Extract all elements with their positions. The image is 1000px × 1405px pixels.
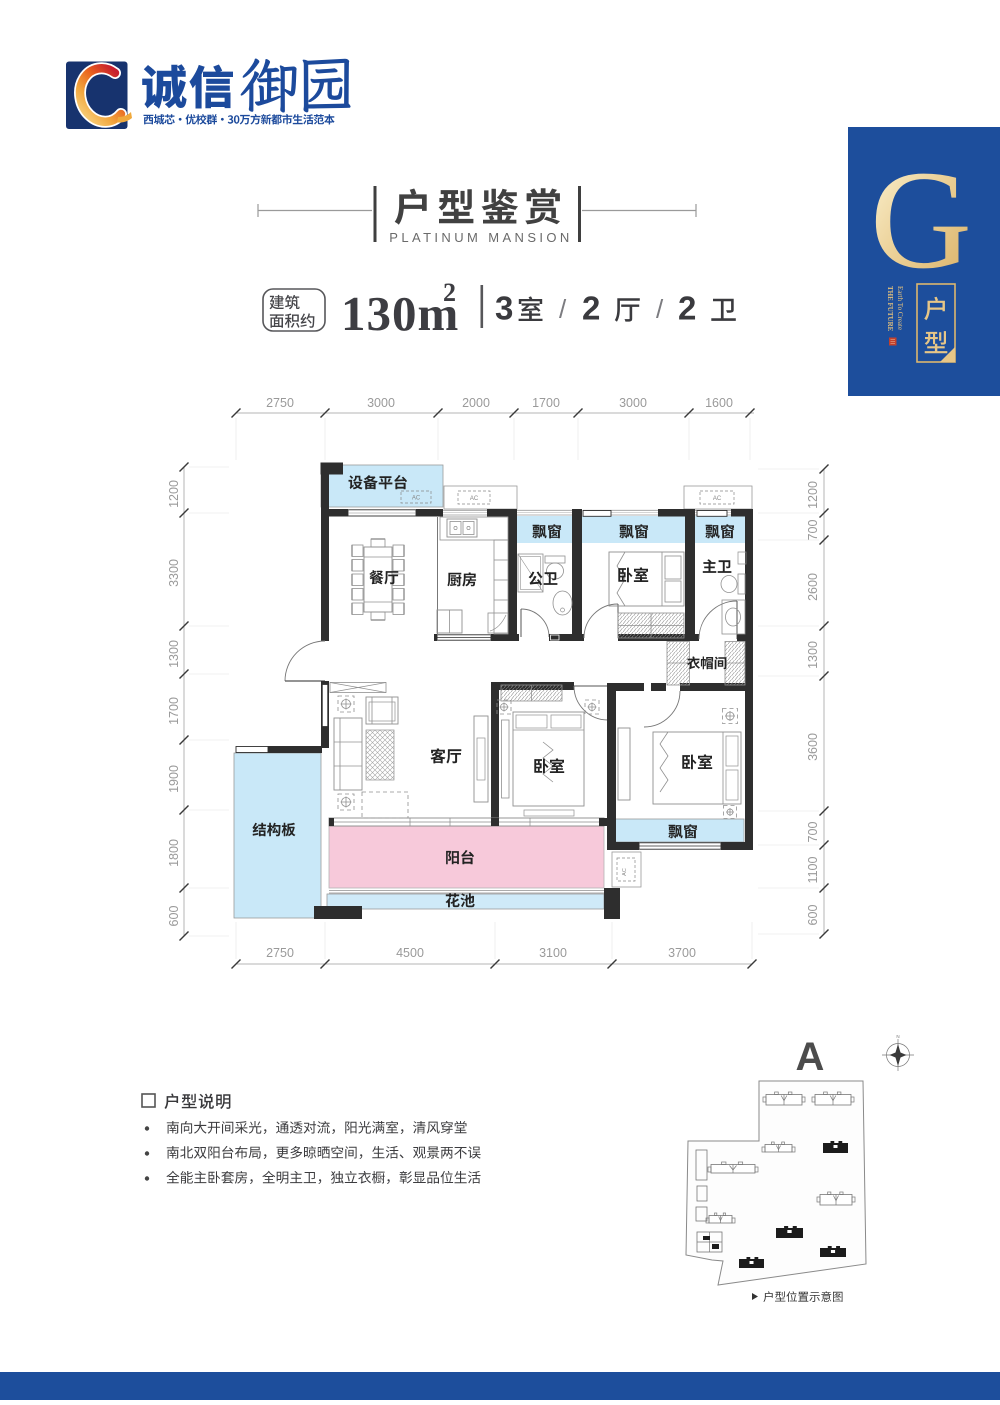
- svg-text:600: 600: [806, 905, 820, 926]
- svg-text:1300: 1300: [167, 640, 181, 668]
- svg-text:3600: 3600: [806, 733, 820, 761]
- svg-text:3100: 3100: [539, 946, 567, 960]
- svg-text:/: /: [656, 294, 664, 324]
- svg-text:2750: 2750: [266, 946, 294, 960]
- svg-text:3000: 3000: [619, 396, 647, 410]
- svg-text:3700: 3700: [668, 946, 696, 960]
- svg-text:3300: 3300: [167, 559, 181, 587]
- svg-text:G: G: [870, 142, 972, 298]
- svg-text:1700: 1700: [532, 396, 560, 410]
- svg-text:1900: 1900: [167, 765, 181, 793]
- svg-text:2600: 2600: [806, 573, 820, 601]
- svg-text:600: 600: [167, 906, 181, 927]
- svg-text:1200: 1200: [167, 480, 181, 508]
- svg-text:700: 700: [806, 520, 820, 541]
- svg-text:1800: 1800: [167, 839, 181, 867]
- svg-text:1300: 1300: [806, 641, 820, 669]
- svg-text:1100: 1100: [806, 857, 820, 884]
- svg-text:1700: 1700: [167, 697, 181, 725]
- svg-text:AC: AC: [622, 868, 628, 876]
- svg-text:PLATINUM MANSION: PLATINUM MANSION: [389, 230, 572, 245]
- svg-text:2750: 2750: [266, 396, 294, 410]
- svg-text:2: 2: [443, 278, 456, 307]
- svg-text:/: /: [559, 294, 567, 324]
- svg-text:130m: 130m: [341, 286, 459, 341]
- svg-text:A: A: [796, 1035, 825, 1079]
- svg-text:N: N: [896, 1034, 899, 1039]
- svg-text:1600: 1600: [705, 396, 733, 410]
- svg-text:2: 2: [678, 290, 696, 327]
- svg-text:3: 3: [495, 290, 513, 327]
- svg-text:THE FUTURE: THE FUTURE: [886, 286, 894, 332]
- svg-text:AC: AC: [470, 496, 479, 502]
- svg-text:2: 2: [582, 290, 600, 327]
- svg-text:700: 700: [806, 822, 820, 843]
- svg-text:3000: 3000: [367, 396, 395, 410]
- svg-text:AC: AC: [412, 496, 421, 502]
- svg-text:1200: 1200: [806, 481, 820, 509]
- svg-text:2000: 2000: [462, 396, 490, 410]
- svg-text:Earth To Create: Earth To Create: [896, 286, 904, 330]
- svg-text:AC: AC: [713, 496, 722, 502]
- svg-text:4500: 4500: [396, 946, 424, 960]
